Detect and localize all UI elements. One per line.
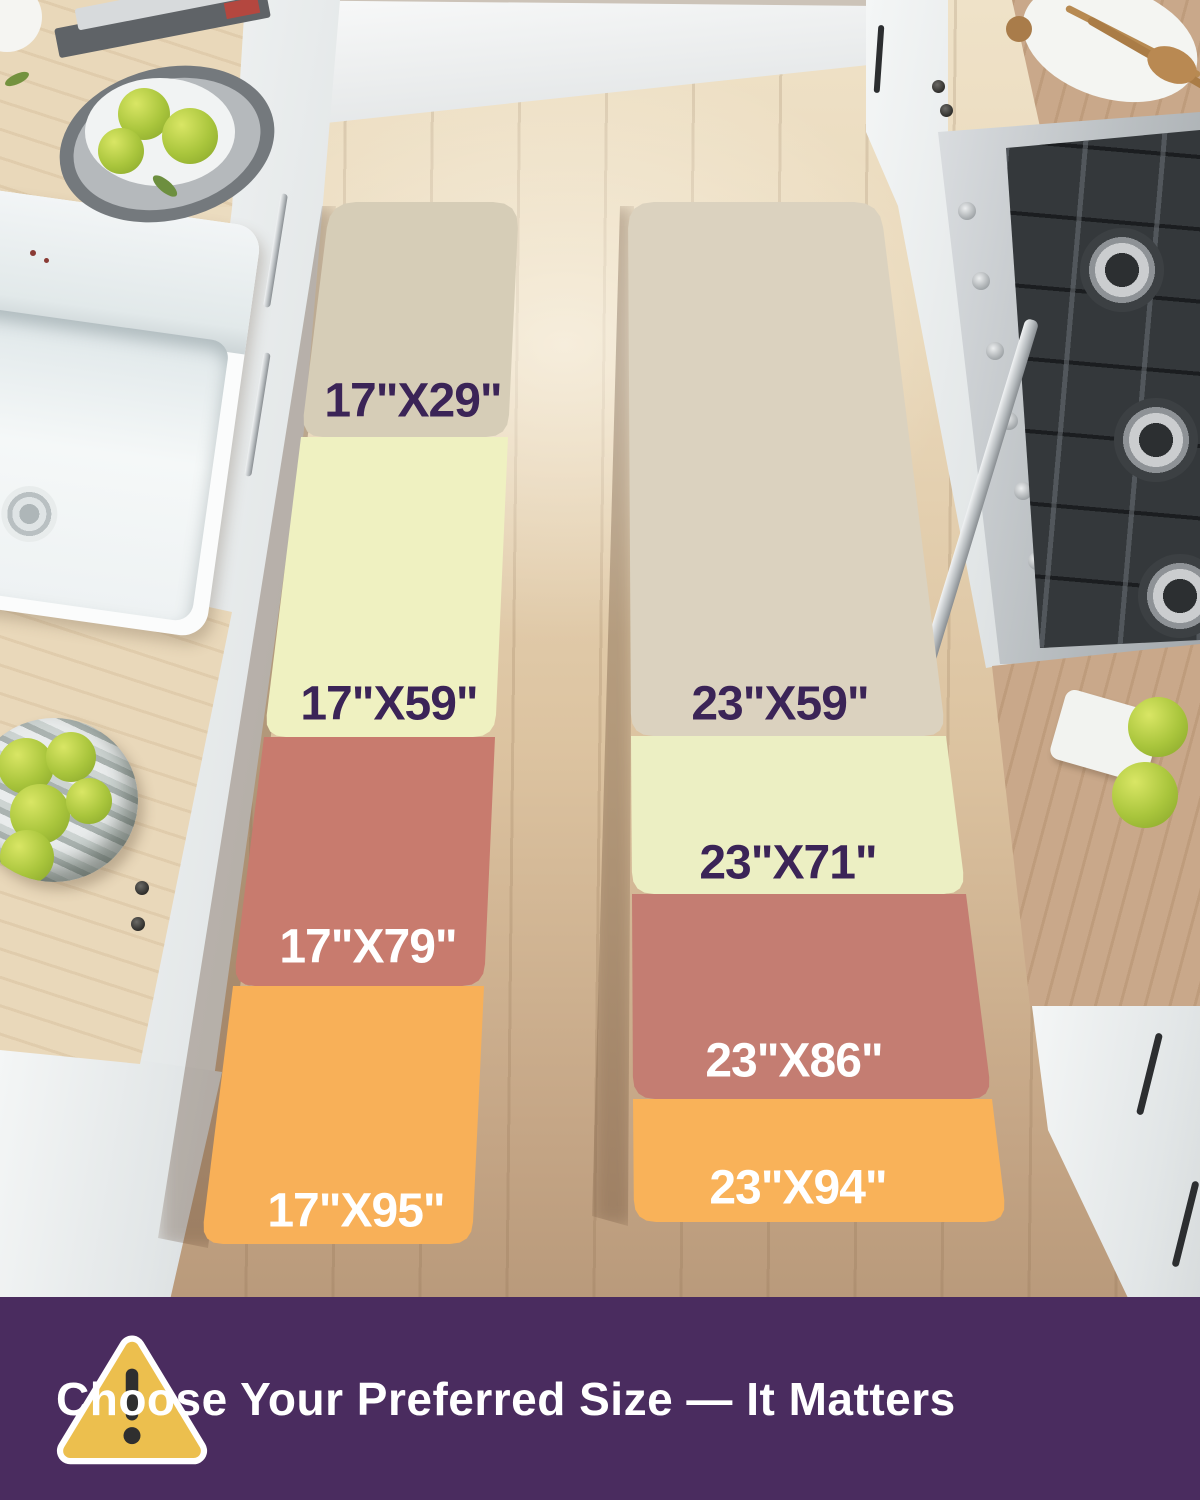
size-label-23x59: 23"X59" [691, 677, 868, 732]
stove-knob [972, 272, 990, 290]
peppercorn [44, 258, 49, 263]
stove-knob [986, 342, 1004, 360]
apple [66, 778, 112, 824]
stove-knob [958, 202, 976, 220]
gas-burner [1080, 228, 1164, 312]
cabinet-knob [940, 104, 953, 117]
apple [46, 732, 96, 782]
gas-burner [1114, 398, 1198, 482]
gas-burner [1138, 554, 1200, 638]
product-size-infographic: 17"X29" 17"X59" 17"X79" 17"X95" 23"X59" … [0, 0, 1200, 1500]
size-label-23x71: 23"X71" [699, 836, 876, 891]
apple [1128, 697, 1188, 757]
banner-text: Choose Your Preferred Size — It Matters [56, 1372, 992, 1426]
size-label-17x79: 17"X79" [279, 920, 456, 975]
cabinet-knob [932, 80, 945, 93]
cabinet-knob [131, 917, 145, 931]
size-label-17x95: 17"X95" [267, 1184, 444, 1239]
size-label-17x59: 17"X59" [300, 677, 477, 732]
size-label-17x29: 17"X29" [324, 374, 501, 429]
size-label-23x86: 23"X86" [705, 1034, 882, 1089]
apple [0, 830, 54, 882]
peppercorn [30, 250, 36, 256]
size-label-23x94: 23"X94" [709, 1161, 886, 1216]
size-warning-banner: Choose Your Preferred Size — It Matters [0, 1297, 1200, 1500]
sink-basin [0, 305, 230, 622]
cabinet-knob [135, 881, 149, 895]
lime [98, 128, 144, 174]
lime [162, 108, 218, 164]
gas-cooktop [1006, 130, 1200, 648]
small-cup [1006, 16, 1032, 42]
apple [1112, 762, 1178, 828]
